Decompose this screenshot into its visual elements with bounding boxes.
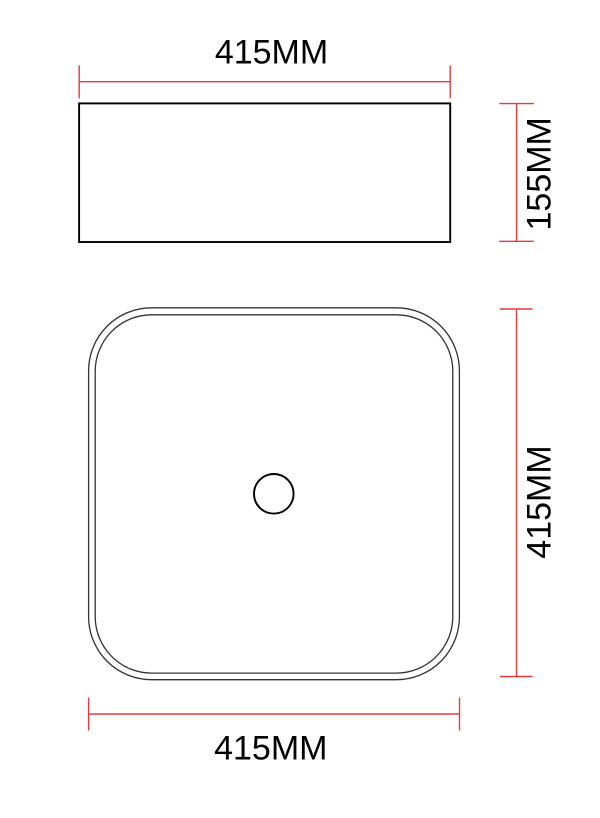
svg-text:415MM: 415MM — [214, 730, 327, 768]
svg-text:415MM: 415MM — [215, 33, 328, 71]
svg-text:415MM: 415MM — [520, 445, 558, 558]
svg-text:155MM: 155MM — [520, 117, 558, 230]
